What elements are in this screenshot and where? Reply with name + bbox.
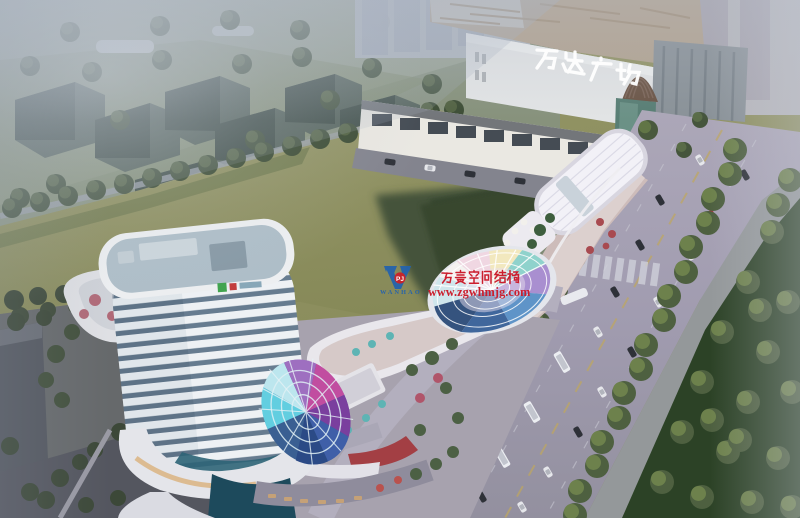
svg-text:www.zgwhmjg.com: www.zgwhmjg.com [428, 285, 530, 299]
